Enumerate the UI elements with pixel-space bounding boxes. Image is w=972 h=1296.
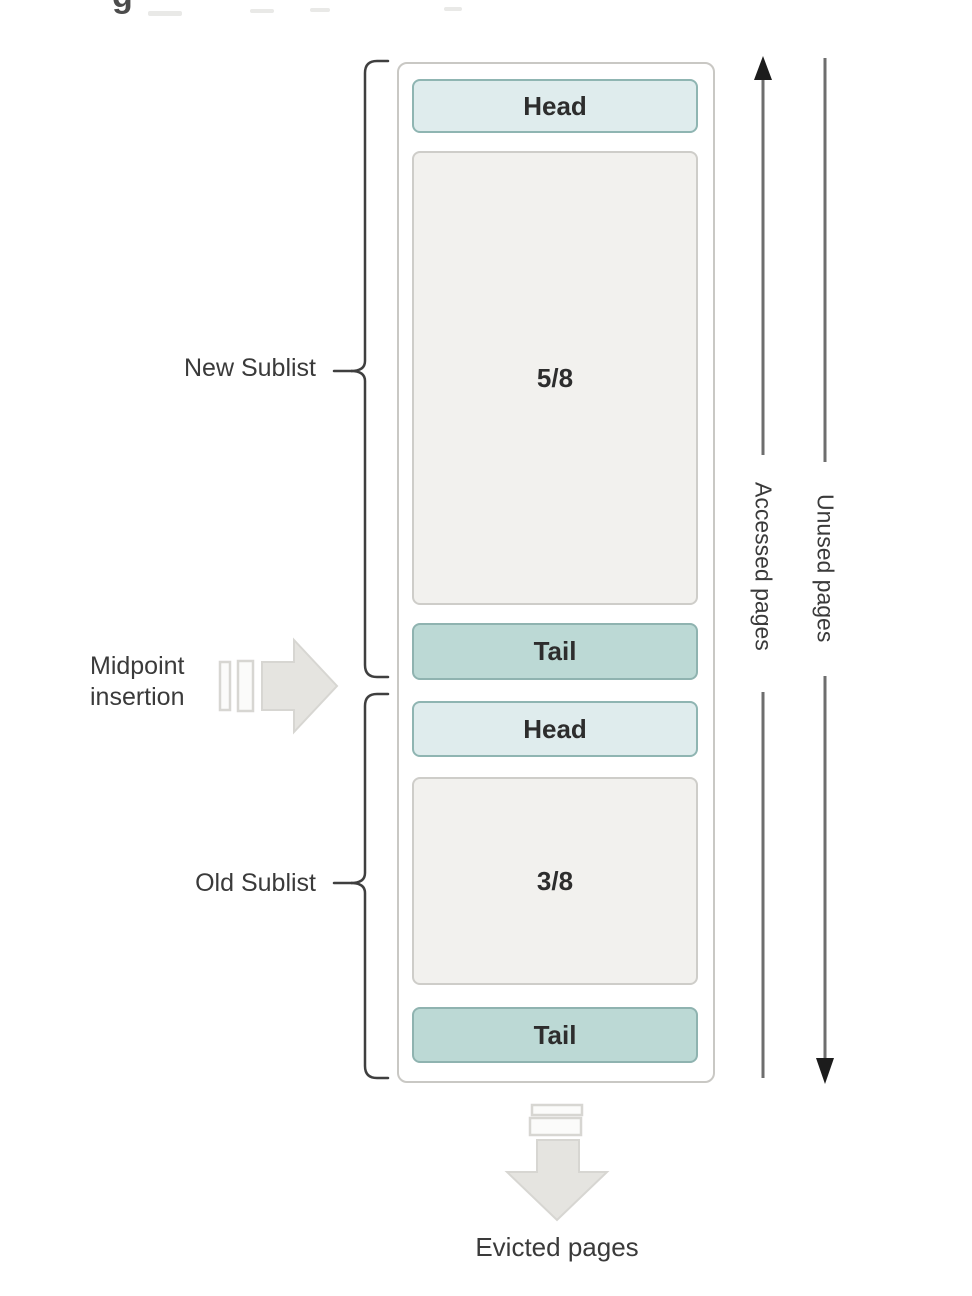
buffer-pool-container: Head 5/8 Tail Head 3/8 Tail (397, 62, 715, 1083)
new-sublist-tail-label: Tail (534, 636, 577, 667)
midpoint-insertion-line1: Midpoint (90, 651, 250, 682)
new-sublist-pages-box: 5/8 (412, 151, 698, 605)
cropped-caption-smudge (148, 11, 182, 16)
new-sublist-tail-box: Tail (412, 623, 698, 680)
old-sublist-tail-box: Tail (412, 1007, 698, 1063)
cropped-caption-smudge (310, 8, 330, 12)
accessed-pages-arrowhead-icon (754, 56, 772, 80)
midpoint-insertion-line2: insertion (90, 682, 250, 713)
old-sublist-bracket (351, 694, 388, 1078)
cropped-caption-glyph: g (112, 0, 133, 16)
evicted-pages-label: Evicted pages (427, 1232, 687, 1263)
cropped-caption-smudge (250, 9, 274, 13)
unused-pages-arrowhead-icon (816, 1058, 834, 1084)
cropped-caption-fragment: g (108, 0, 142, 20)
new-sublist-bracket (351, 61, 388, 677)
new-sublist-fraction-label: 5/8 (537, 363, 573, 394)
accessed-pages-label: Accessed pages (749, 460, 777, 672)
old-sublist-head-label: Head (523, 714, 587, 745)
old-sublist-pages-box: 3/8 (412, 777, 698, 985)
diagram-canvas: g Head 5/8 Tail Head 3/8 Tail New Sublis… (0, 0, 972, 1296)
new-sublist-label: New Sublist (110, 353, 316, 384)
cropped-caption-smudge (444, 7, 462, 11)
old-sublist-fraction-label: 3/8 (537, 866, 573, 897)
old-sublist-tail-label: Tail (534, 1020, 577, 1051)
old-sublist-head-box: Head (412, 701, 698, 757)
old-sublist-label: Old Sublist (130, 868, 316, 899)
new-sublist-head-label: Head (523, 91, 587, 122)
midpoint-insertion-arrow-icon (262, 640, 337, 732)
unused-pages-label: Unused pages (811, 466, 839, 670)
evicted-pages-bar-icon (530, 1118, 581, 1135)
midpoint-insertion-label: Midpoint insertion (90, 651, 250, 713)
new-sublist-head-box: Head (412, 79, 698, 133)
evicted-pages-arrow-icon (507, 1140, 607, 1220)
evicted-pages-bar-icon (532, 1105, 582, 1115)
